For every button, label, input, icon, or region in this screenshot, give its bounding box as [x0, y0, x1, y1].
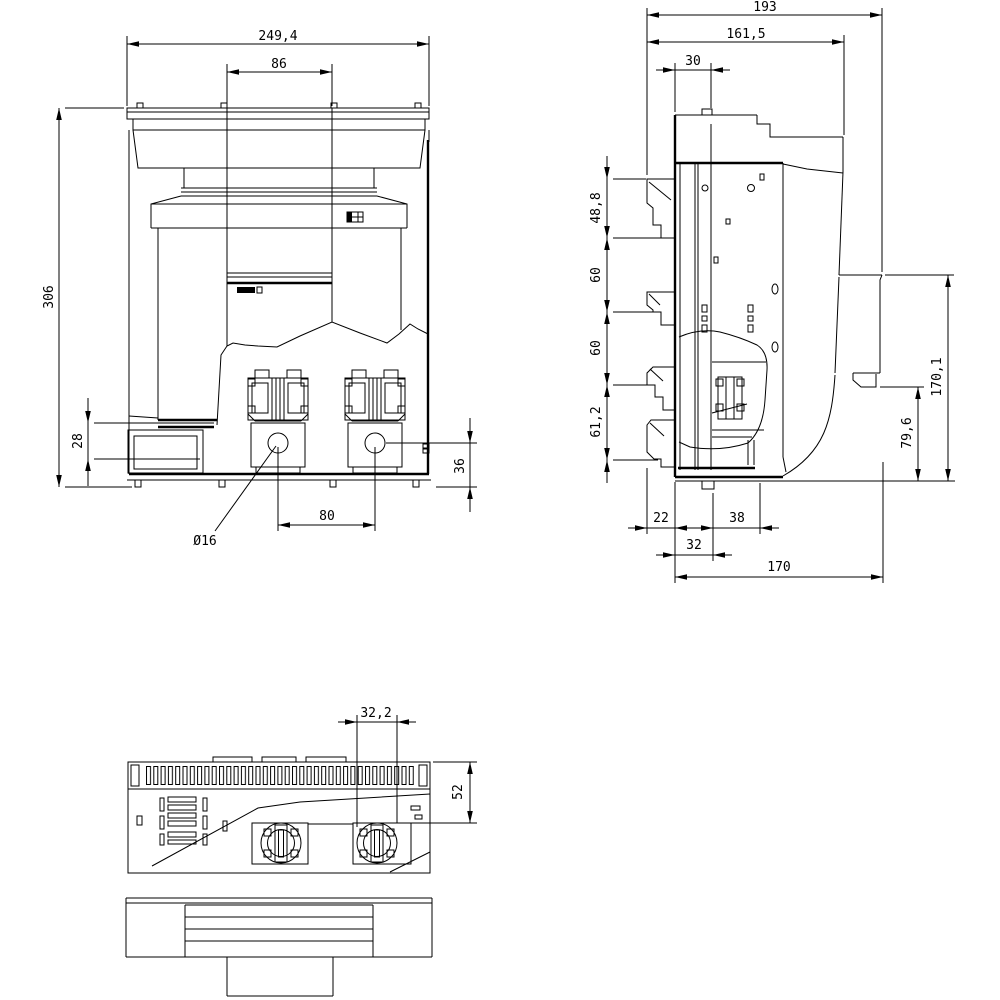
dimension-drawing: 249,4 86 306 28 36 [0, 0, 1000, 1000]
technical-drawing-page: 249,4 86 306 28 36 [0, 0, 1000, 1000]
dim-side-height-lower: 79,6 [900, 417, 915, 448]
dim-front-center-width: 86 [271, 57, 287, 72]
dim-bottom-edge-offset: 52 [451, 784, 466, 800]
dim-side-base-mid: 38 [729, 511, 745, 526]
dim-side-base-offset: 32 [686, 538, 702, 553]
dim-bottom-slot-offset: 32,2 [360, 706, 391, 721]
vent-slots [146, 766, 414, 785]
dim-side-clip-top: 48,8 [589, 192, 604, 223]
dim-front-height: 306 [42, 285, 57, 308]
dim-side-base-total: 170 [767, 560, 790, 575]
dim-side-height-total: 170,1 [930, 357, 945, 396]
dim-front-hole-pitch: 80 [319, 509, 335, 524]
dim-front-hole-height: 36 [453, 458, 468, 474]
dim-side-depth-body: 161,5 [726, 27, 765, 42]
dim-side-clip-bottom: 61,2 [589, 406, 604, 437]
dim-front-overall-width: 249,4 [258, 29, 297, 44]
dim-front-hole-diameter: Ø16 [193, 534, 216, 549]
dim-side-clip-pitch-2: 60 [589, 340, 604, 356]
dim-side-clip-pitch-1: 60 [589, 267, 604, 283]
label-sticker [237, 287, 255, 293]
dim-side-top-offset: 30 [685, 54, 701, 69]
drawing-background [0, 0, 1000, 1000]
dim-side-depth-total: 193 [753, 0, 776, 15]
dim-front-terminal-height: 28 [71, 433, 86, 449]
dim-side-base-front: 22 [653, 511, 669, 526]
